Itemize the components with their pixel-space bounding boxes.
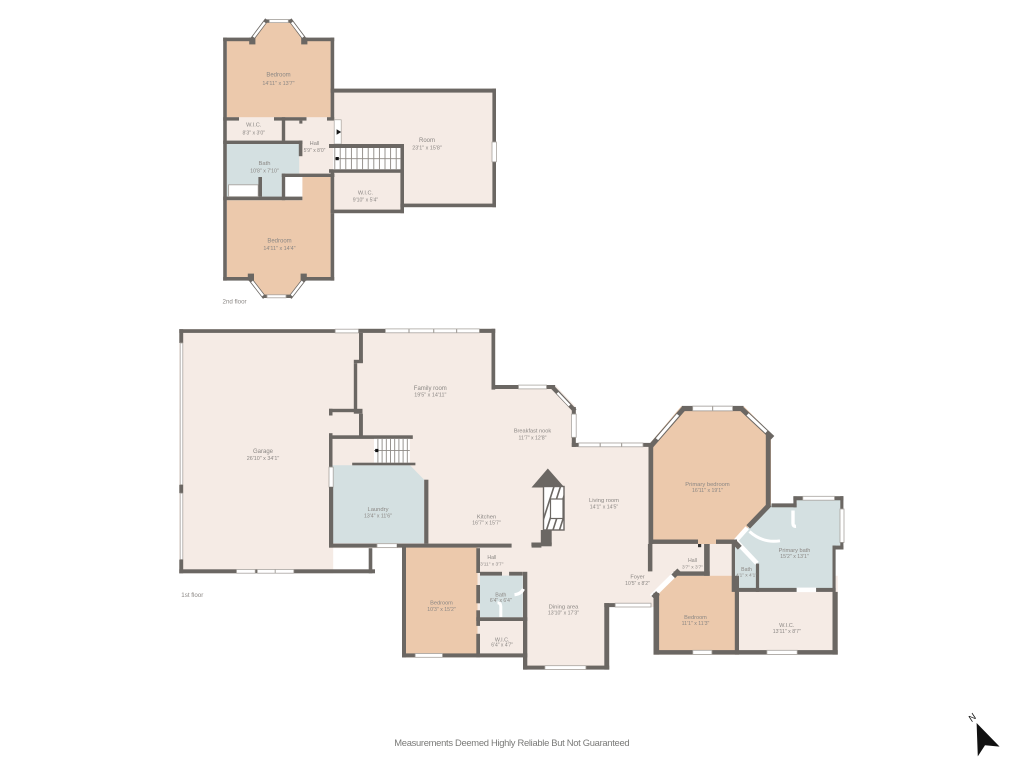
svg-text:Bedroom: Bedroom	[267, 239, 291, 245]
svg-text:9'10" x 5'4": 9'10" x 5'4"	[353, 198, 379, 204]
svg-text:10'8" x 7'10": 10'8" x 7'10"	[250, 169, 279, 175]
svg-text:13'10" x 17'3": 13'10" x 17'3"	[548, 611, 579, 617]
svg-text:6'4" x 4'7": 6'4" x 4'7"	[491, 643, 513, 649]
svg-text:26'10" x 34'1": 26'10" x 34'1"	[247, 456, 280, 462]
svg-text:8'3" x 3'0": 8'3" x 3'0"	[242, 131, 265, 137]
svg-text:Hall: Hall	[688, 558, 697, 564]
svg-text:Garage: Garage	[253, 449, 274, 455]
svg-text:13'4" x 11'6": 13'4" x 11'6"	[364, 514, 392, 520]
svg-text:Bath: Bath	[741, 567, 752, 573]
svg-text:11'1" x 11'3": 11'1" x 11'3"	[682, 621, 710, 627]
svg-text:Laundry: Laundry	[368, 507, 389, 513]
svg-text:Measurements Deemed Highly Rel: Measurements Deemed Highly Reliable But …	[394, 737, 629, 748]
svg-text:14'1" x 14'5": 14'1" x 14'5"	[590, 505, 619, 511]
svg-text:Hall: Hall	[310, 141, 320, 147]
svg-text:13'11" x 8'7": 13'11" x 8'7"	[773, 629, 801, 635]
svg-text:4'1" x 4'1": 4'1" x 4'1"	[736, 572, 757, 578]
svg-text:3'7" x 3'7": 3'7" x 3'7"	[682, 565, 703, 571]
svg-text:W.I.C.: W.I.C.	[246, 123, 262, 129]
svg-text:15'2" x 13'1": 15'2" x 13'1"	[780, 554, 809, 560]
svg-text:19'5" x 14'11": 19'5" x 14'11"	[414, 393, 446, 399]
svg-text:10'5" x 8'2": 10'5" x 8'2"	[625, 581, 650, 587]
svg-text:Primary bath: Primary bath	[779, 548, 811, 554]
svg-text:16'7" x 15'7": 16'7" x 15'7"	[472, 521, 501, 527]
svg-text:Bath: Bath	[259, 161, 271, 167]
svg-text:16'11" x 19'1": 16'11" x 19'1"	[692, 488, 723, 494]
svg-text:Bedroom: Bedroom	[430, 601, 453, 607]
svg-text:Breakfast nook: Breakfast nook	[514, 429, 552, 435]
svg-text:Foyer: Foyer	[630, 575, 644, 581]
svg-text:1st floor: 1st floor	[181, 592, 203, 599]
svg-text:Bedroom: Bedroom	[266, 73, 290, 79]
svg-text:Family room: Family room	[414, 386, 447, 392]
svg-text:Primary bedroom: Primary bedroom	[685, 482, 730, 488]
svg-text:W.I.C.: W.I.C.	[358, 191, 374, 197]
svg-text:2nd floor: 2nd floor	[223, 299, 247, 306]
svg-text:10'3" x 15'2": 10'3" x 15'2"	[427, 607, 456, 613]
svg-text:5'9" x 8'0": 5'9" x 8'0"	[304, 148, 326, 154]
svg-text:Room: Room	[419, 138, 435, 144]
svg-text:Hall: Hall	[487, 555, 496, 561]
svg-text:14'11" x 14'4": 14'11" x 14'4"	[263, 246, 295, 252]
svg-text:11'7" x 12'8": 11'7" x 12'8"	[518, 436, 546, 442]
svg-text:23'1" x 15'8": 23'1" x 15'8"	[412, 145, 442, 151]
svg-text:3'11" x 3'7": 3'11" x 3'7"	[480, 562, 504, 568]
svg-text:6'4" x 6'4": 6'4" x 6'4"	[490, 598, 512, 604]
svg-text:Living room: Living room	[589, 498, 619, 504]
svg-text:14'11" x 13'7": 14'11" x 13'7"	[262, 81, 294, 87]
